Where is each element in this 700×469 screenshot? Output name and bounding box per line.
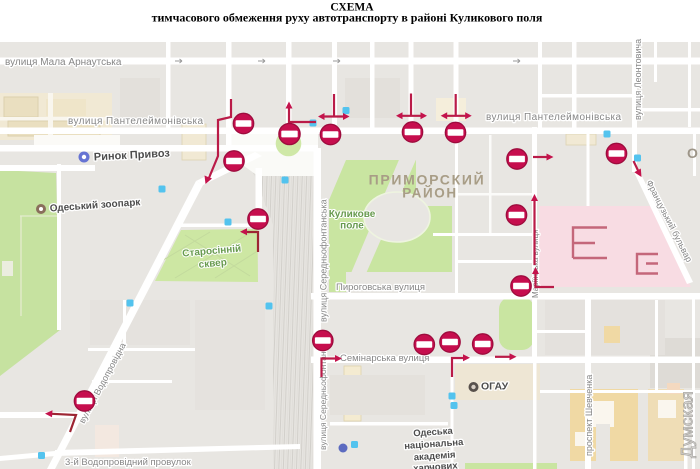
svg-text:О: О <box>687 145 698 161</box>
svg-text:Семінарська вулиця: Семінарська вулиця <box>340 353 429 364</box>
svg-text:проспект Шевченка: проспект Шевченка <box>584 375 594 456</box>
svg-text:вулиця Леонтовича: вулиця Леонтовича <box>633 39 643 120</box>
svg-text:ОГАУ: ОГАУ <box>481 381 509 393</box>
svg-text:вулиця Пантелеймонівська: вулиця Пантелеймонівська <box>68 116 204 127</box>
svg-text:3-й Водопровідний провулок: 3-й Водопровідний провулок <box>65 457 192 468</box>
svg-text:Пироговська вулиця: Пироговська вулиця <box>336 282 425 293</box>
svg-text:тимчасового обмеження руху авт: тимчасового обмеження руху автотранспорт… <box>152 11 543 25</box>
svg-text:Куликове: Куликове <box>329 209 376 220</box>
svg-text:вулиця Пантелеймонівська: вулиця Пантелеймонівська <box>486 112 622 123</box>
svg-text:поле: поле <box>340 221 364 232</box>
svg-text:РАЙОН: РАЙОН <box>402 186 458 201</box>
svg-text:вулиця Мала Арнаутська: вулиця Мала Арнаутська <box>5 57 122 68</box>
svg-text:вулиця Середньофонтанська: вулиця Середньофонтанська <box>319 199 329 322</box>
svg-text:Думская: Думская <box>678 391 697 458</box>
